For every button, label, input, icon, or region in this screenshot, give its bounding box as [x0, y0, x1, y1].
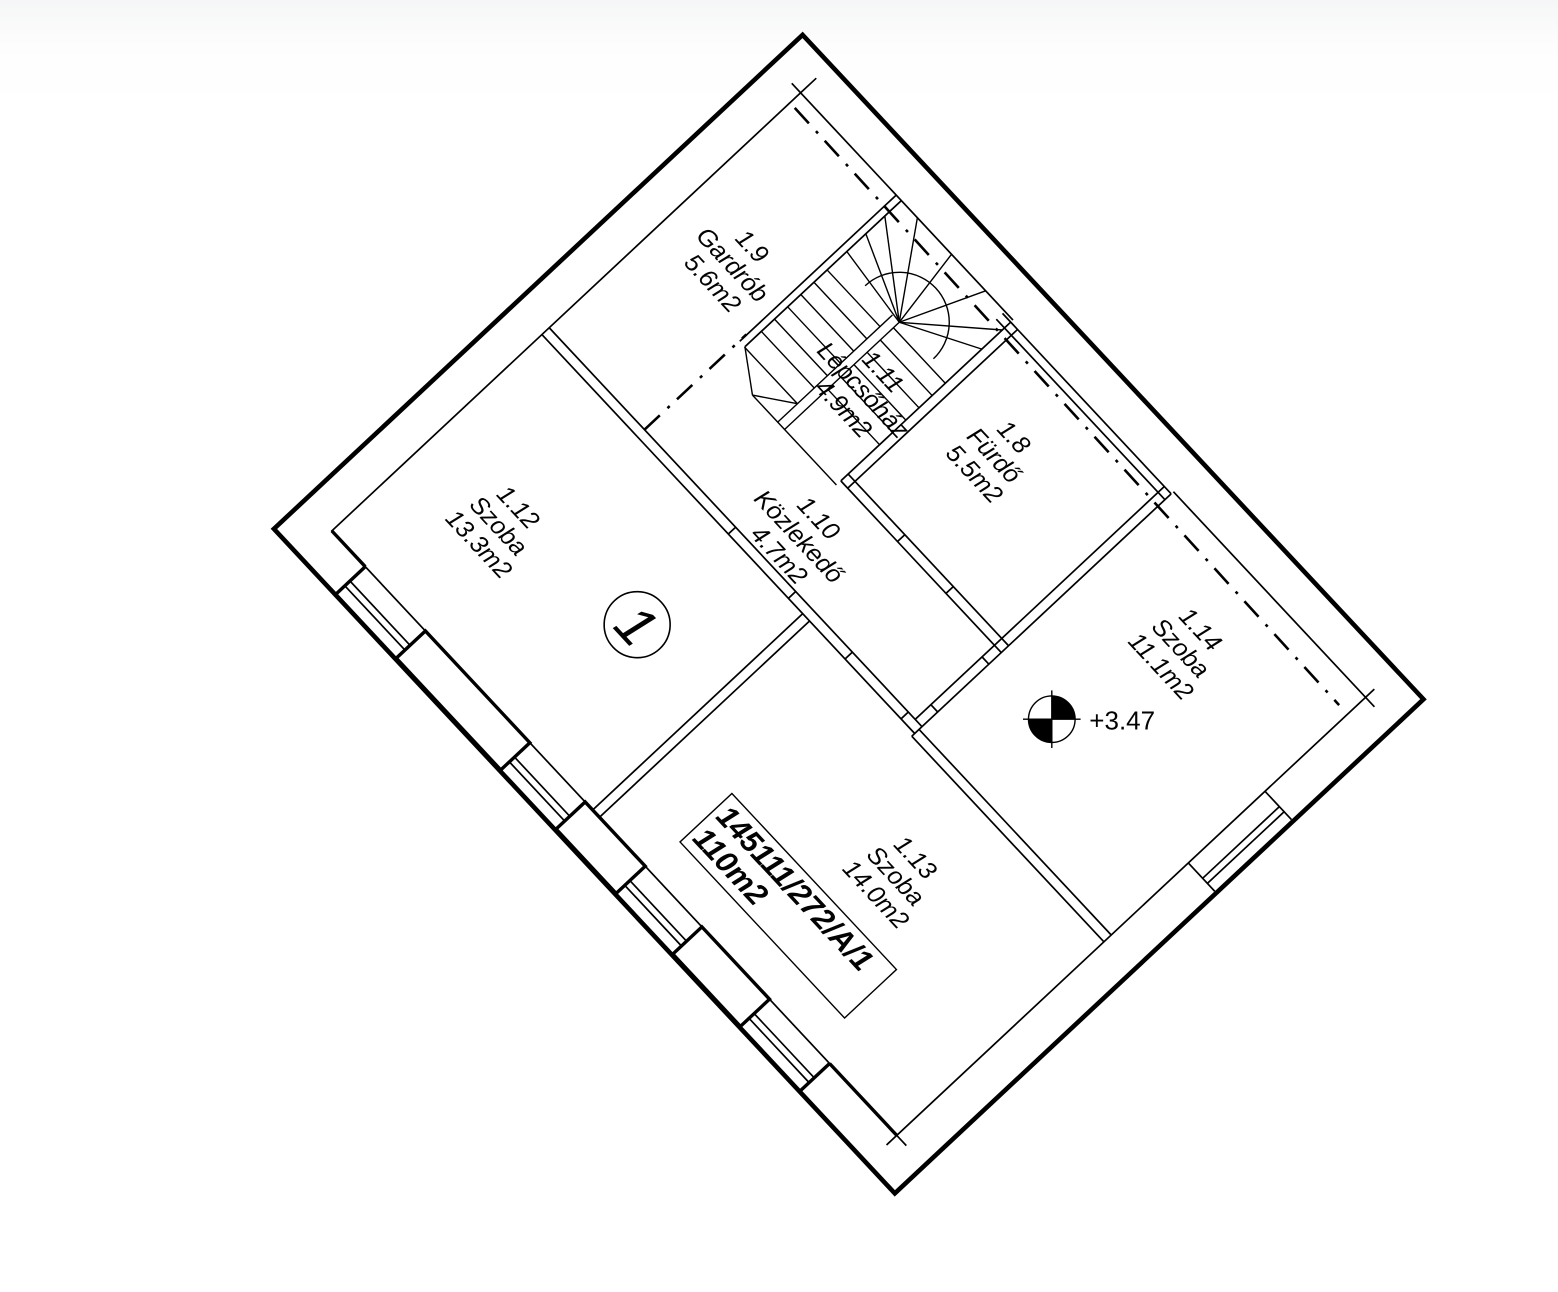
- svg-text:+3.47: +3.47: [1089, 706, 1155, 736]
